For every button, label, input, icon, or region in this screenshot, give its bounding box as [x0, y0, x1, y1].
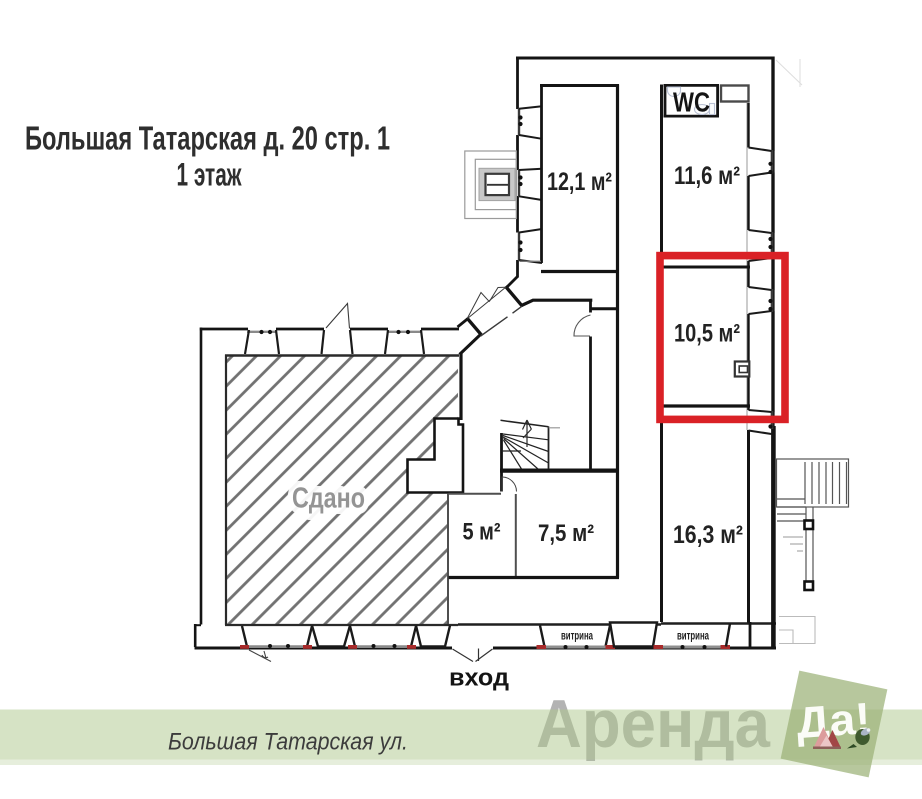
svg-text:7,5 м²: 7,5 м²	[538, 520, 594, 547]
svg-text:вход: вход	[449, 665, 509, 692]
svg-text:16,3 м²: 16,3 м²	[673, 521, 743, 549]
svg-text:10,5 м²: 10,5 м²	[674, 320, 740, 348]
svg-text:11,6 м²: 11,6 м²	[674, 162, 740, 190]
svg-text:Большая Татарская ул.: Большая Татарская ул.	[168, 729, 408, 756]
svg-text:Большая Татарская д. 20 стр. 1: Большая Татарская д. 20 стр. 1	[25, 120, 390, 157]
svg-text:WC: WC	[673, 87, 710, 118]
svg-text:витрина: витрина	[677, 631, 709, 643]
svg-text:Сдано: Сдано	[292, 483, 365, 515]
svg-text:1 этаж: 1 этаж	[177, 157, 242, 193]
svg-text:12,1 м²: 12,1 м²	[547, 168, 612, 196]
svg-text:витрина: витрина	[561, 631, 593, 643]
svg-text:5 м²: 5 м²	[463, 519, 501, 546]
